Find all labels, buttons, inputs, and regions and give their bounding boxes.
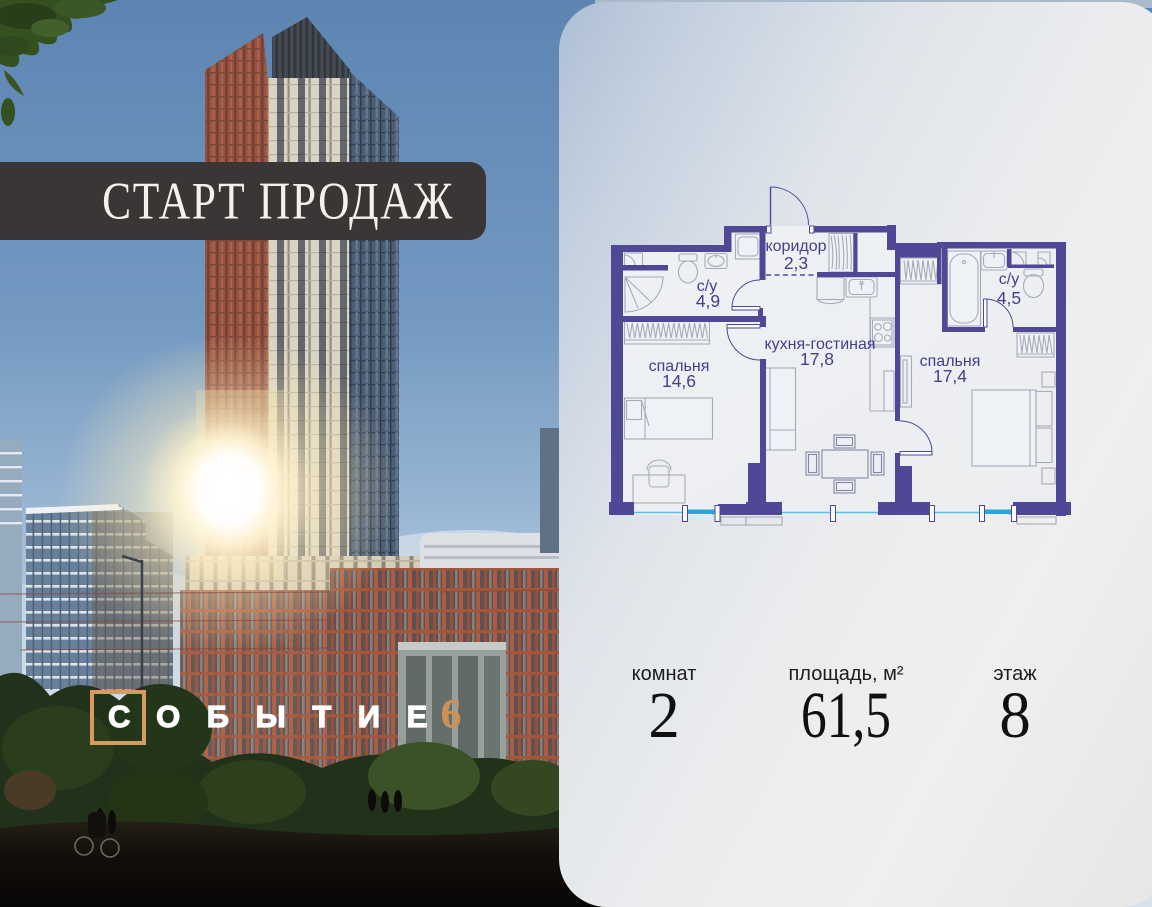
svg-text:2,3: 2,3: [784, 253, 808, 273]
svg-text:с/у: с/у: [999, 271, 1019, 288]
svg-text:14,6: 14,6: [662, 371, 696, 391]
svg-text:4,9: 4,9: [696, 291, 720, 311]
svg-text:17,8: 17,8: [800, 349, 834, 369]
svg-text:4,5: 4,5: [997, 288, 1021, 308]
svg-text:17,4: 17,4: [933, 366, 967, 386]
